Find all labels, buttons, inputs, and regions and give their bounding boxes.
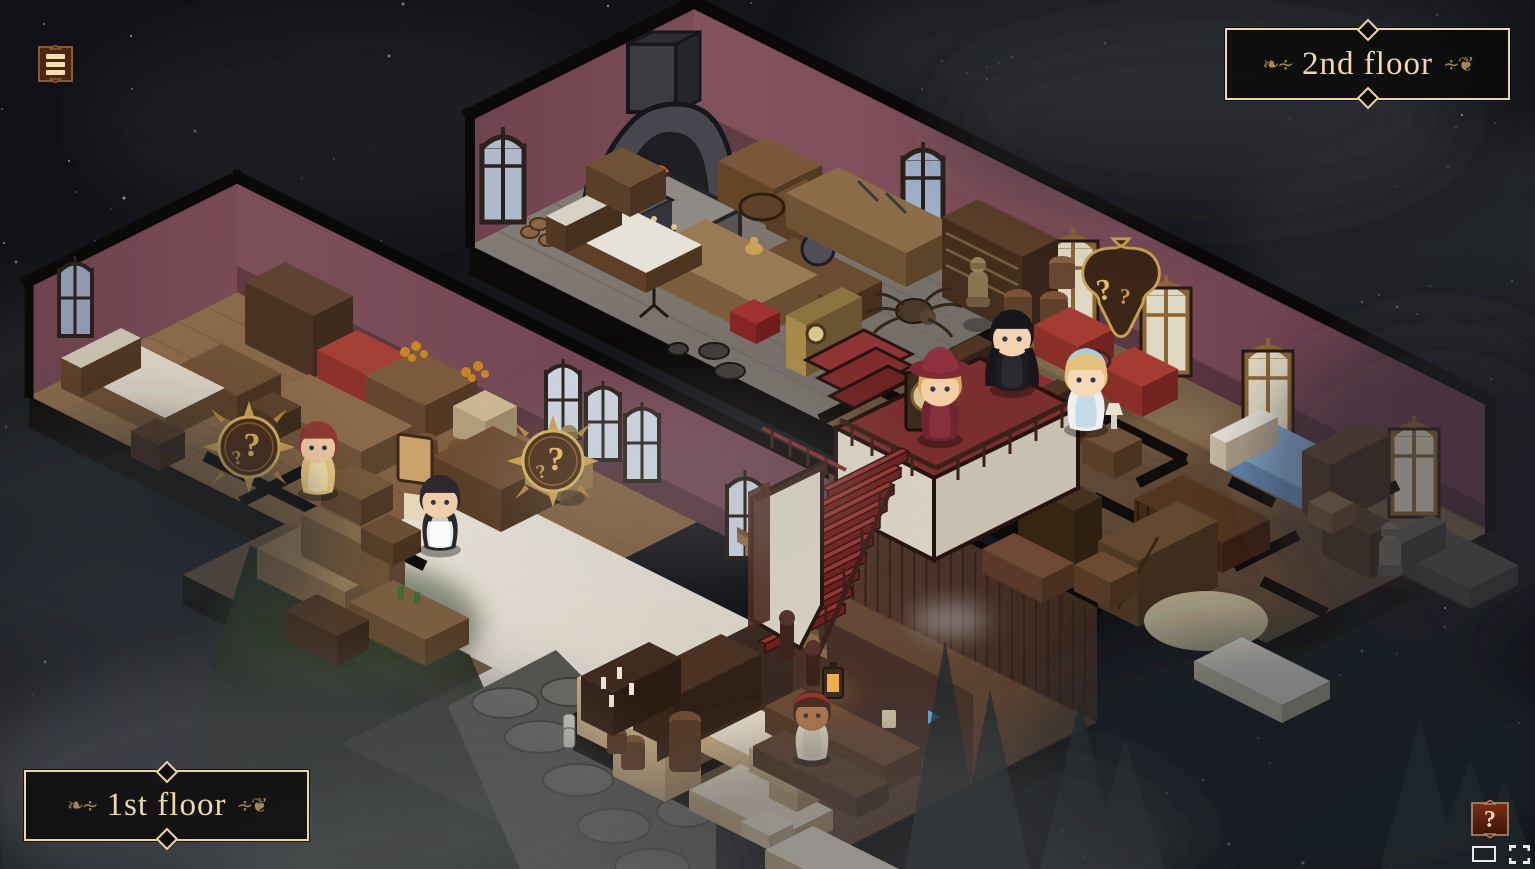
svg-text:?: ? (1484, 807, 1496, 833)
